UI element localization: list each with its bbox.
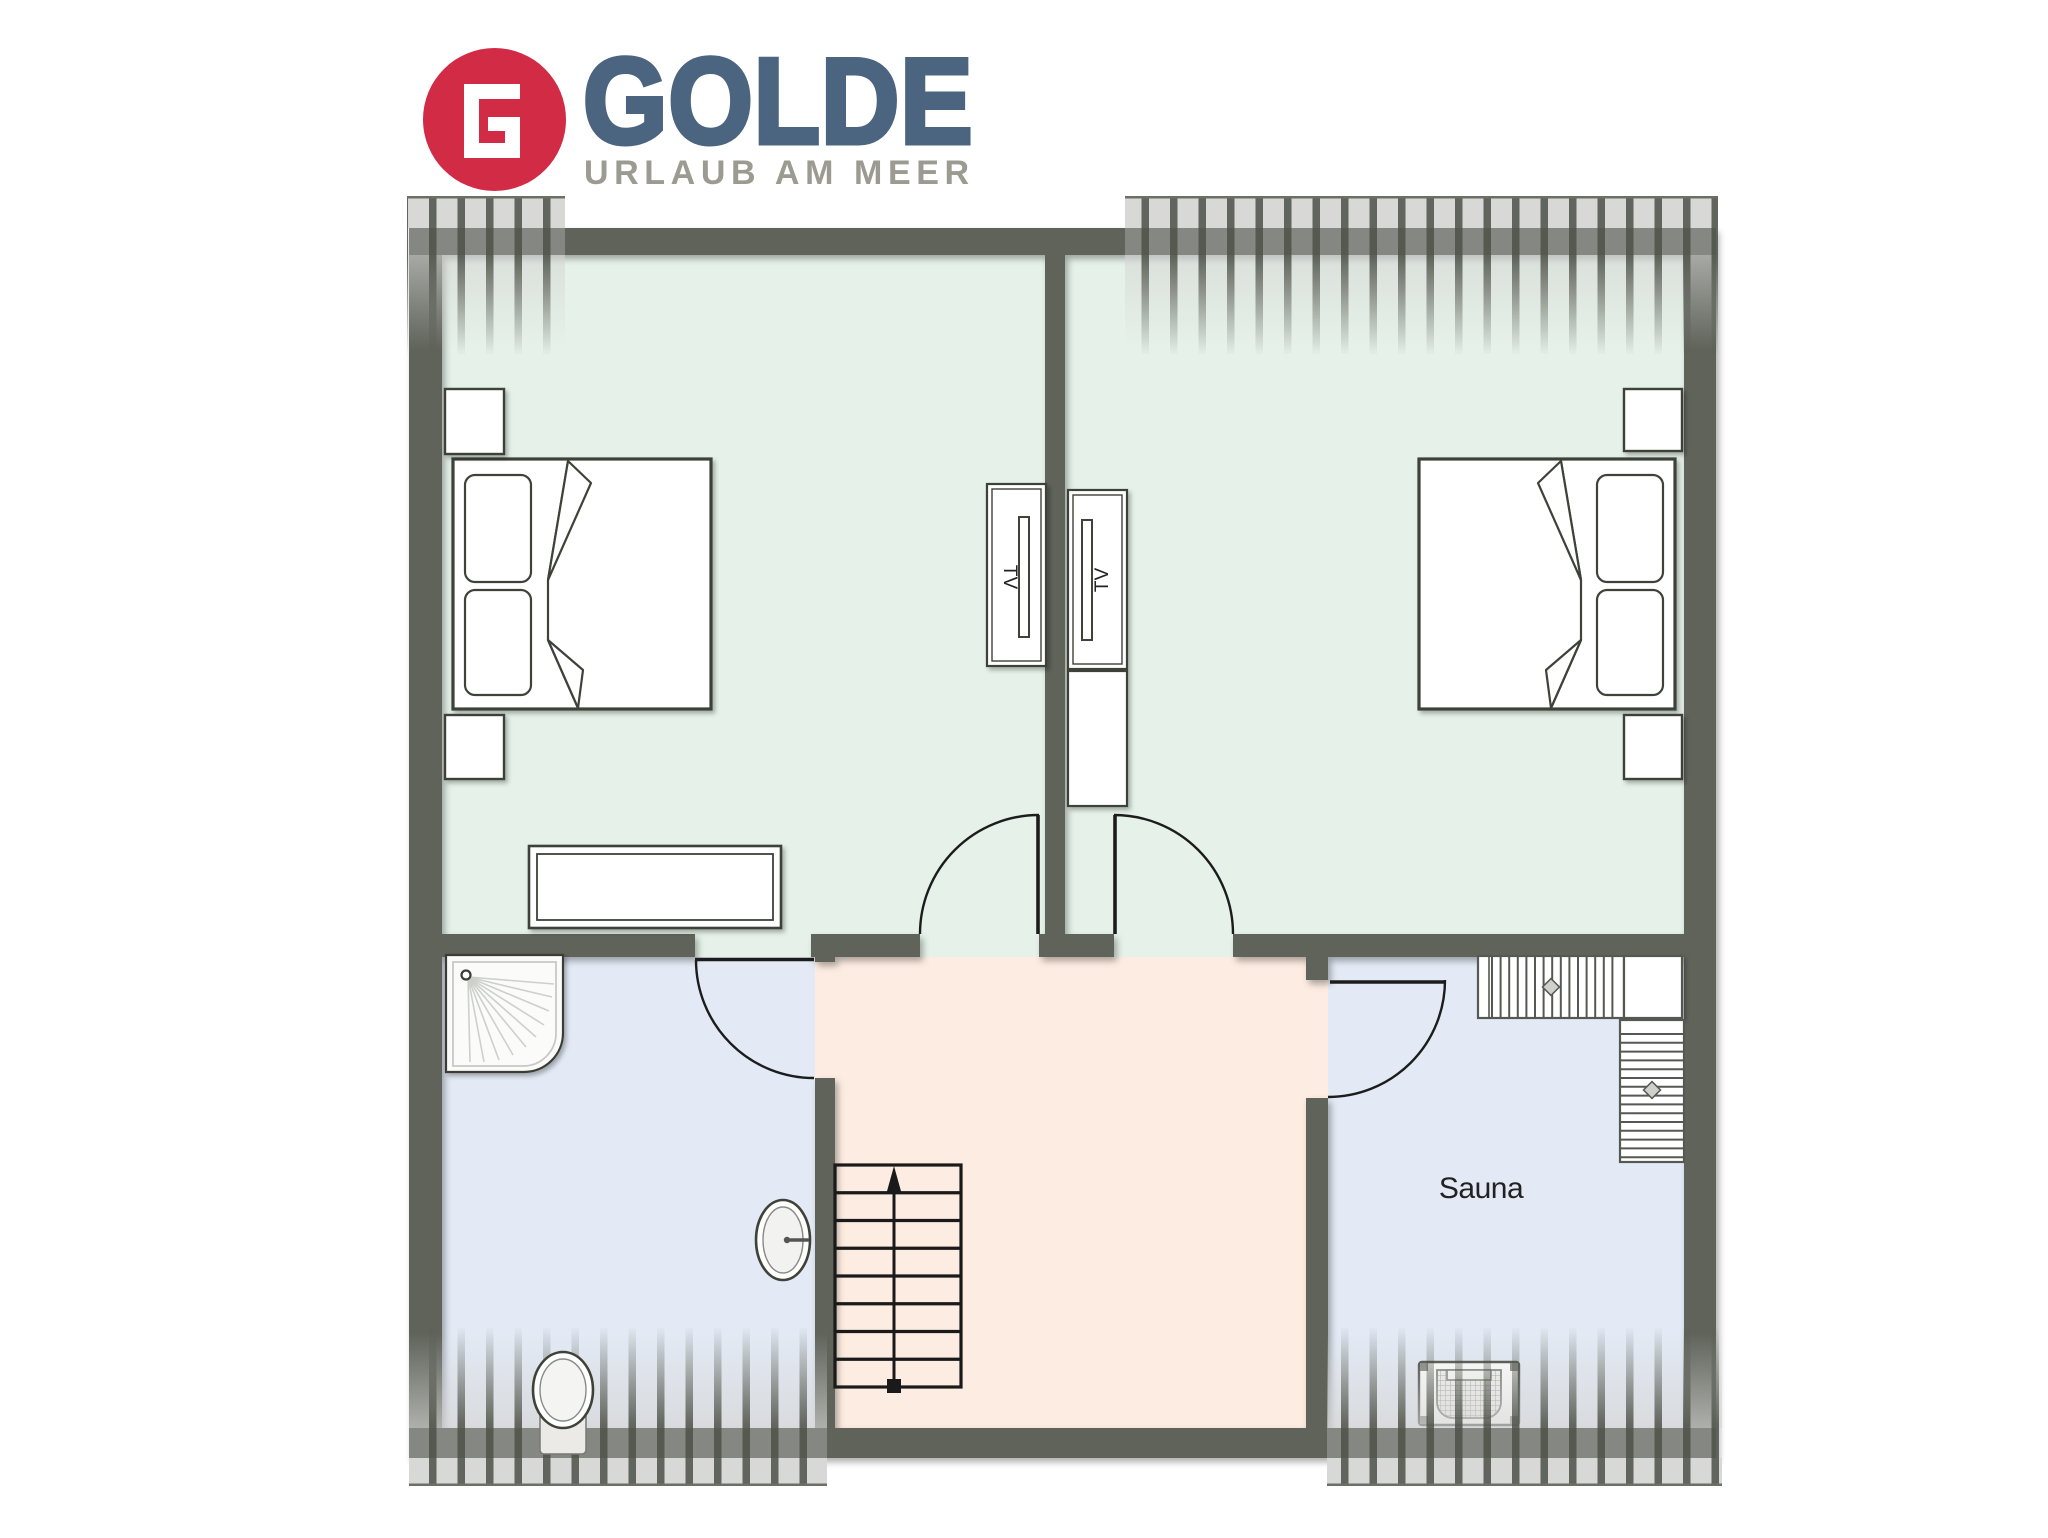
svg-text:GOLDE: GOLDE	[583, 33, 973, 169]
svg-text:TV: TV	[999, 565, 1020, 590]
svg-text:Sauna: Sauna	[1439, 1172, 1524, 1205]
svg-text:TV: TV	[1092, 568, 1113, 593]
svg-text:URLAUB AM MEER: URLAUB AM MEER	[584, 154, 975, 192]
